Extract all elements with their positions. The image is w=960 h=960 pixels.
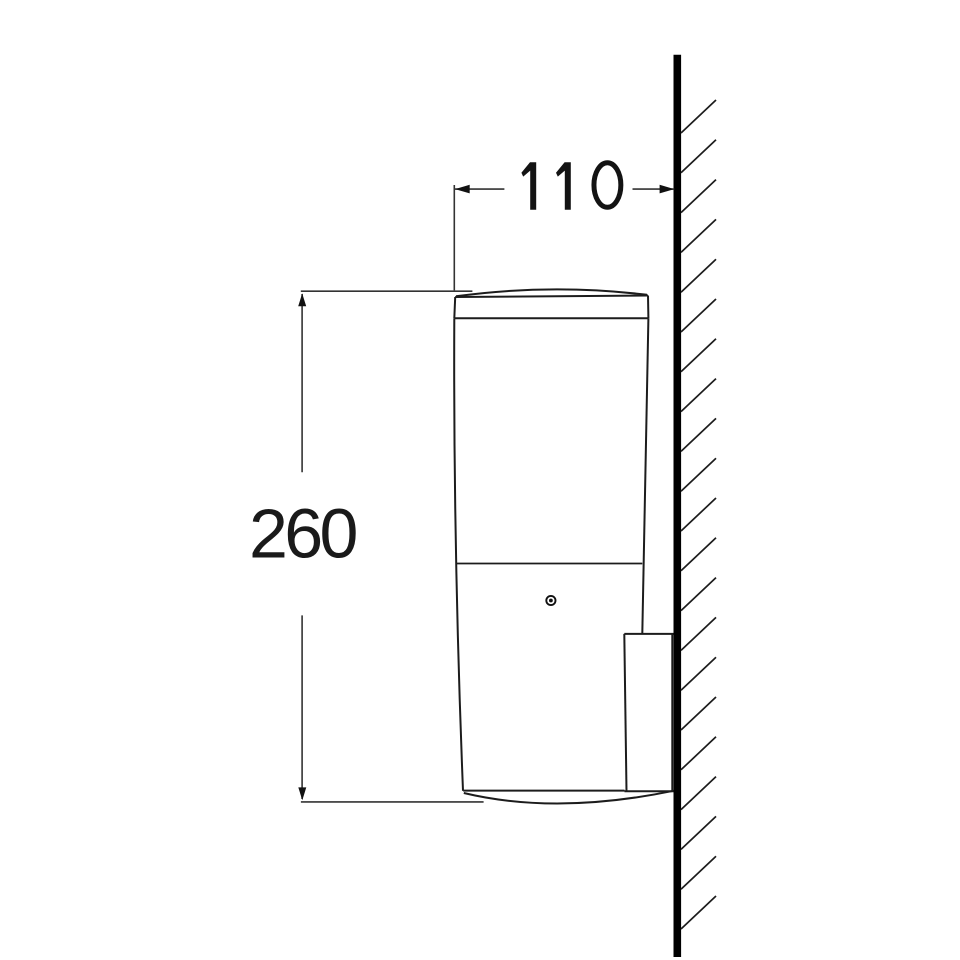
svg-text:260: 260 — [249, 495, 356, 573]
